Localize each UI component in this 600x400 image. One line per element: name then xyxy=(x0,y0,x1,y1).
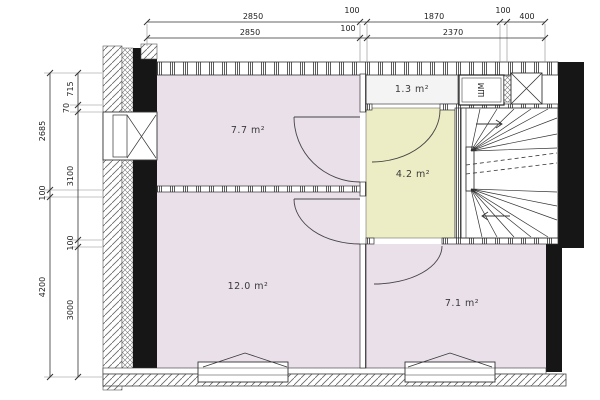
left-wall-insulation xyxy=(122,48,133,386)
top-left-corner-detail xyxy=(141,44,157,59)
left-wall-cladding xyxy=(103,46,122,390)
dim-top1-100a: 100 xyxy=(344,6,359,15)
bottom-window-2 xyxy=(405,362,495,382)
left-window xyxy=(103,112,157,160)
dim-left-outer-2685: 2685 xyxy=(38,121,47,141)
left-wall-structure xyxy=(133,48,157,368)
duct-hatch xyxy=(504,76,511,102)
top-wall xyxy=(157,62,558,75)
dim-left-inner-70: 70 xyxy=(62,103,71,113)
dim-top2-2850: 2850 xyxy=(240,28,260,37)
room-12-0-label: 12.0 m² xyxy=(228,281,269,292)
dim-top2-2370: 2370 xyxy=(443,28,463,37)
dim-top1-2850: 2850 xyxy=(243,12,263,21)
dim-top2-100: 100 xyxy=(340,24,355,33)
dim-top1-1870: 1870 xyxy=(424,12,444,21)
dim-left-inner-715: 715 xyxy=(66,81,75,96)
stair-left-partition xyxy=(455,108,461,238)
stair-newel xyxy=(466,147,474,191)
hall-partition-seg-1 xyxy=(366,104,372,110)
dim-left-inner-3100: 3100 xyxy=(66,166,75,186)
washing-machine-label: ШМ xyxy=(477,83,486,98)
dim-left-outer-4200: 4200 xyxy=(38,277,47,297)
staircase xyxy=(461,108,558,238)
room-12-0-floor xyxy=(157,192,360,368)
vertical-partition-seg-3 xyxy=(360,244,366,368)
lower-partition-seg-2 xyxy=(442,238,558,244)
left-dim-inner-line xyxy=(75,70,81,380)
left-witness-lines xyxy=(44,73,102,377)
horizontal-partition-left xyxy=(157,186,360,192)
dim-left-inner-3000: 3000 xyxy=(66,300,75,320)
lower-partition-seg-1 xyxy=(366,238,374,244)
room-4-2-label: 4.2 m² xyxy=(396,169,430,180)
vertical-partition-seg-2 xyxy=(360,182,366,196)
right-wall-upper xyxy=(558,62,584,248)
dim-left-inner-100: 100 xyxy=(66,235,75,250)
top-dim-row-2 xyxy=(144,35,548,41)
right-wall-lower xyxy=(546,238,562,372)
vertical-partition-seg-1 xyxy=(360,74,366,112)
floor-plan-drawing: ШМ 7.7 m² 1.3 m² xyxy=(0,0,600,400)
room-7-1-label: 7.1 m² xyxy=(445,298,479,309)
left-window-frame xyxy=(113,115,127,157)
dim-top1-100b: 100 xyxy=(495,6,510,15)
dim-top1-400: 400 xyxy=(519,12,534,21)
bottom-window-1 xyxy=(198,362,288,382)
left-dim-outer-line xyxy=(47,70,53,380)
room-7-7-label: 7.7 m² xyxy=(231,125,265,136)
left-dimensions: 2685 100 4200 715 70 3100 100 3000 xyxy=(38,70,102,380)
room-1-3-label: 1.3 m² xyxy=(395,84,429,95)
top-dimensions: 2850 100 1870 100 400 2850 100 2370 xyxy=(144,6,548,62)
floor-plan-canvas: ШМ 7.7 m² 1.3 m² xyxy=(0,0,600,400)
top-right-fixtures: ШМ xyxy=(459,73,542,105)
dim-left-outer-100: 100 xyxy=(38,185,47,200)
bottom-wall-hatched-band xyxy=(103,374,566,386)
